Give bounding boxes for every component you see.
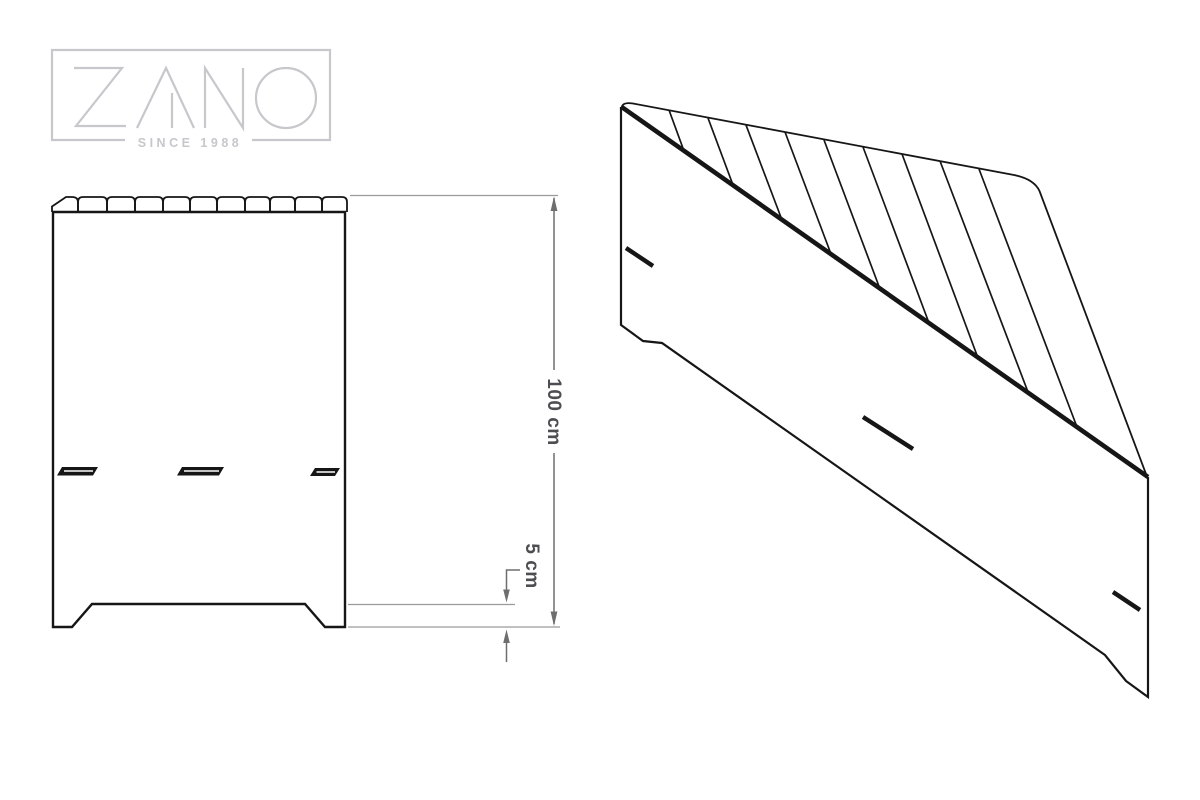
front-panel-outline xyxy=(53,212,345,627)
dimension-annotations: 100 cm 5 cm xyxy=(348,196,564,663)
logo-tagline: SINCE 1988 xyxy=(138,136,242,150)
height-dimension-label: 100 cm xyxy=(543,378,564,445)
logo-letter-z xyxy=(74,68,126,126)
drawing-svg: ZANO SINCE 1988 xyxy=(0,0,1200,800)
logo-letter-o xyxy=(256,68,316,128)
perspective-view-drawing xyxy=(621,103,1148,697)
foot-height-dimension-label: 5 cm xyxy=(521,543,542,588)
front-view-drawing xyxy=(52,197,347,627)
height-dimension: 100 cm xyxy=(543,197,564,627)
logo-letters xyxy=(74,68,316,128)
zano-logo: ZANO SINCE 1988 xyxy=(52,50,330,150)
logo-letter-n xyxy=(205,68,243,128)
foot-height-dimension: 5 cm xyxy=(503,543,542,662)
logo-letter-a xyxy=(137,68,194,128)
technical-drawing-canvas: ZANO SINCE 1988 xyxy=(0,0,1200,800)
perspective-panel-outline xyxy=(621,107,1148,697)
front-plank-strip xyxy=(52,197,347,212)
